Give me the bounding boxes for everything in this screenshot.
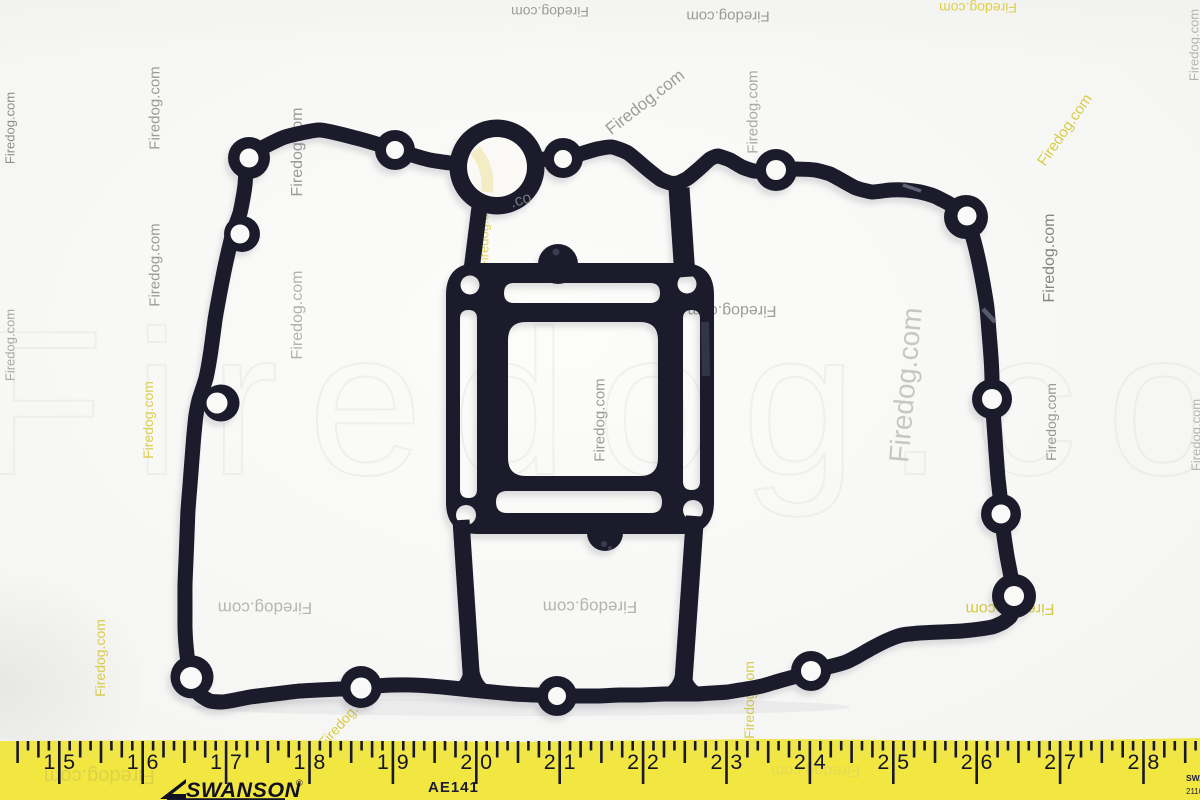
svg-text:2: 2 bbox=[877, 750, 889, 774]
svg-text:8: 8 bbox=[313, 750, 325, 774]
svg-text:2: 2 bbox=[460, 750, 472, 774]
svg-text:1: 1 bbox=[127, 750, 139, 774]
svg-text:4: 4 bbox=[814, 750, 826, 774]
svg-text:2: 2 bbox=[711, 750, 723, 774]
svg-text:SWAN: SWAN bbox=[1186, 773, 1200, 783]
svg-text:2: 2 bbox=[961, 750, 973, 774]
svg-text:1: 1 bbox=[377, 750, 389, 774]
svg-text:2: 2 bbox=[647, 750, 659, 774]
svg-text:2: 2 bbox=[794, 750, 806, 774]
svg-text:2: 2 bbox=[1044, 750, 1056, 774]
svg-text:0: 0 bbox=[480, 750, 492, 774]
svg-text:®: ® bbox=[296, 778, 303, 788]
svg-text:5: 5 bbox=[63, 750, 75, 774]
svg-text:6: 6 bbox=[981, 750, 993, 774]
svg-text:SWANSON: SWANSON bbox=[186, 778, 301, 800]
svg-text:1: 1 bbox=[43, 750, 55, 774]
svg-text:8: 8 bbox=[1147, 750, 1159, 774]
svg-text:1: 1 bbox=[564, 750, 576, 774]
svg-text:1: 1 bbox=[210, 750, 222, 774]
svg-text:AE141: AE141 bbox=[428, 779, 479, 796]
svg-text:2: 2 bbox=[627, 750, 639, 774]
svg-text:7: 7 bbox=[1064, 750, 1076, 774]
svg-text:2: 2 bbox=[1128, 750, 1140, 774]
svg-text:6: 6 bbox=[147, 750, 159, 774]
svg-text:2110: 2110 bbox=[1186, 787, 1200, 796]
svg-text:2: 2 bbox=[544, 750, 556, 774]
svg-text:5: 5 bbox=[897, 750, 909, 774]
svg-text:1: 1 bbox=[294, 750, 306, 774]
svg-text:9: 9 bbox=[397, 750, 409, 774]
svg-text:3: 3 bbox=[730, 750, 742, 774]
svg-text:7: 7 bbox=[230, 750, 242, 774]
